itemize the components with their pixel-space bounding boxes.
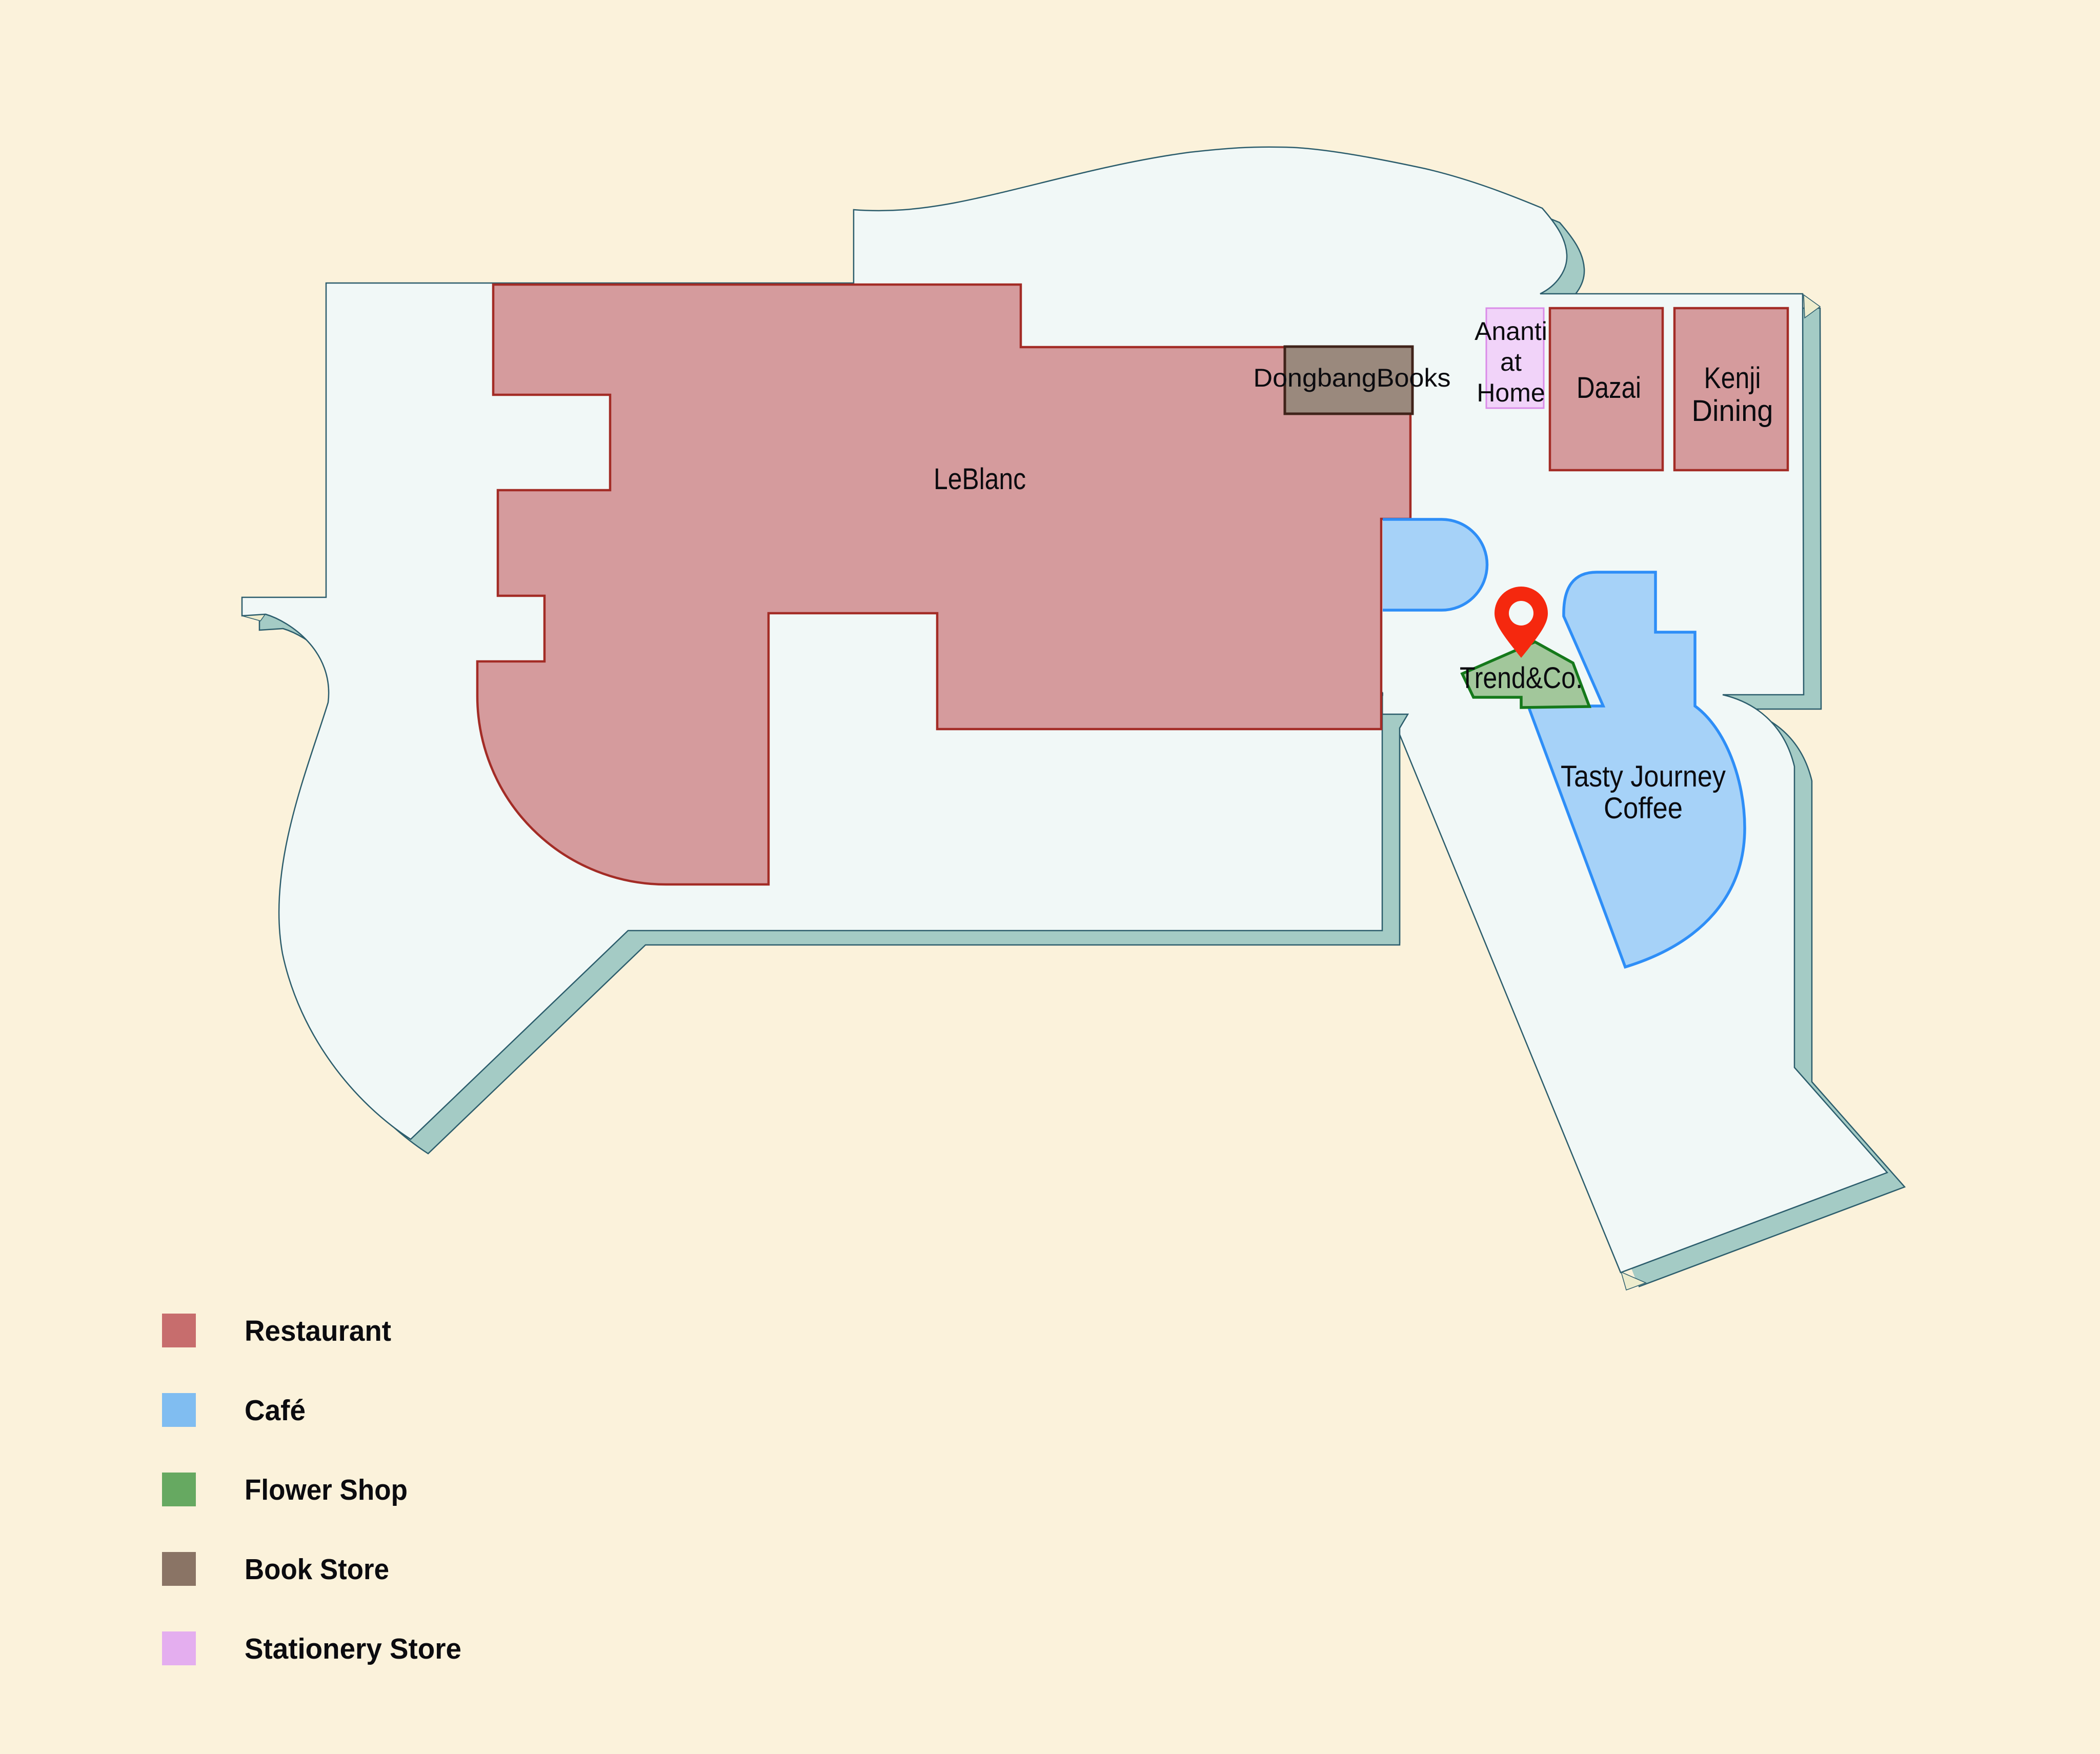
svg-text:LeBlanc: LeBlanc	[934, 462, 1026, 496]
svg-text:at: at	[1500, 348, 1522, 376]
svg-text:Dining: Dining	[1692, 394, 1773, 428]
svg-text:Book Store: Book Store	[245, 1553, 389, 1586]
svg-text:Coffee: Coffee	[1604, 792, 1683, 825]
svg-text:Tasty Journey: Tasty Journey	[1561, 760, 1726, 793]
svg-text:Café: Café	[245, 1394, 306, 1427]
svg-text:Home: Home	[1477, 378, 1545, 407]
svg-text:Stationery Store: Stationery Store	[245, 1632, 461, 1665]
svg-text:Restaurant: Restaurant	[245, 1315, 391, 1347]
svg-text:Trend&Co.: Trend&Co.	[1460, 661, 1583, 695]
svg-text:Kenji: Kenji	[1704, 361, 1761, 395]
svg-text:Flower Shop: Flower Shop	[245, 1474, 408, 1506]
svg-text:Dazai: Dazai	[1577, 371, 1641, 405]
svg-text:DongbangBooks: DongbangBooks	[1254, 364, 1451, 392]
svg-text:Ananti: Ananti	[1475, 317, 1547, 346]
